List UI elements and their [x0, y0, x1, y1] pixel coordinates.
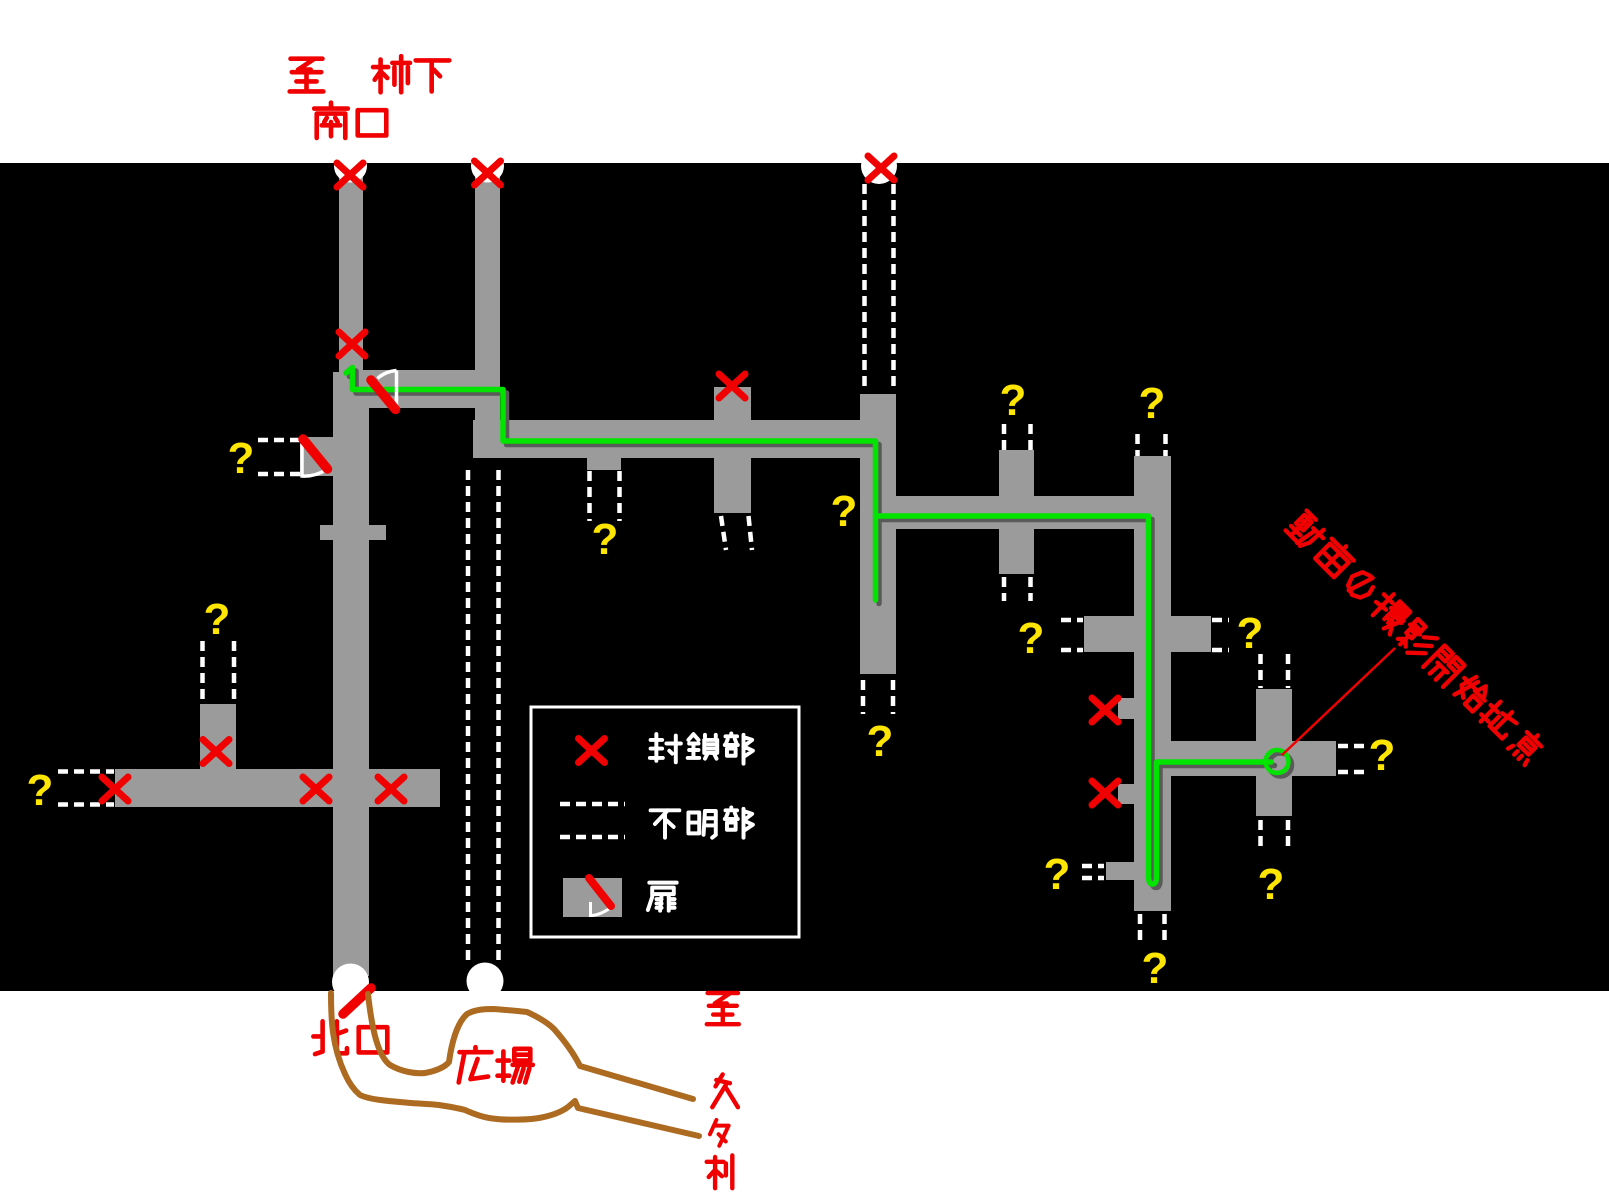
- svg-text:?: ?: [1139, 379, 1166, 428]
- svg-text:?: ?: [831, 487, 858, 536]
- svg-text:?: ?: [1369, 731, 1396, 780]
- svg-text:?: ?: [1000, 376, 1027, 425]
- svg-text:?: ?: [228, 434, 255, 483]
- svg-text:?: ?: [204, 595, 231, 644]
- svg-text:?: ?: [27, 766, 54, 815]
- svg-text:?: ?: [1237, 609, 1264, 658]
- svg-text:?: ?: [1258, 860, 1285, 909]
- svg-text:?: ?: [1142, 944, 1169, 993]
- svg-text:?: ?: [867, 717, 894, 766]
- svg-text:?: ?: [1018, 614, 1045, 663]
- svg-text:?: ?: [592, 515, 619, 564]
- svg-text:?: ?: [1044, 850, 1071, 899]
